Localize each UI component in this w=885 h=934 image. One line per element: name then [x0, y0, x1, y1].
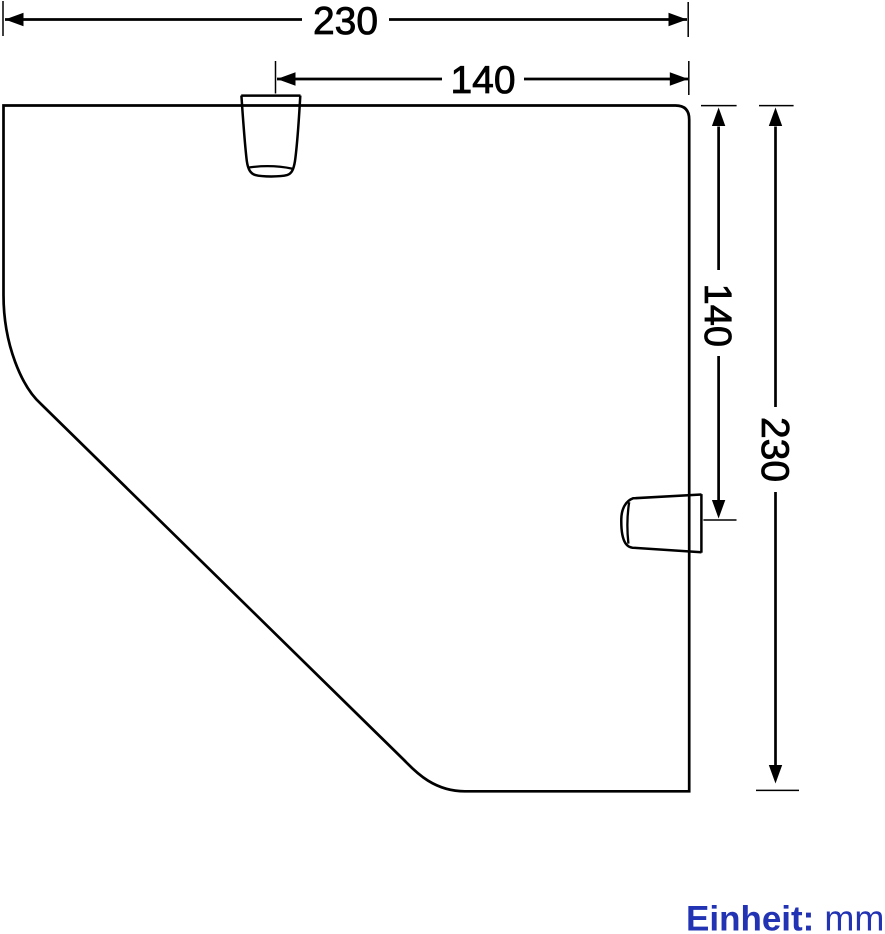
svg-text:230: 230: [313, 0, 378, 43]
svg-text:140: 140: [450, 59, 515, 102]
svg-text:Einheit: mm: Einheit: mm: [686, 898, 884, 934]
svg-text:140: 140: [696, 284, 738, 347]
svg-text:230: 230: [753, 417, 796, 482]
